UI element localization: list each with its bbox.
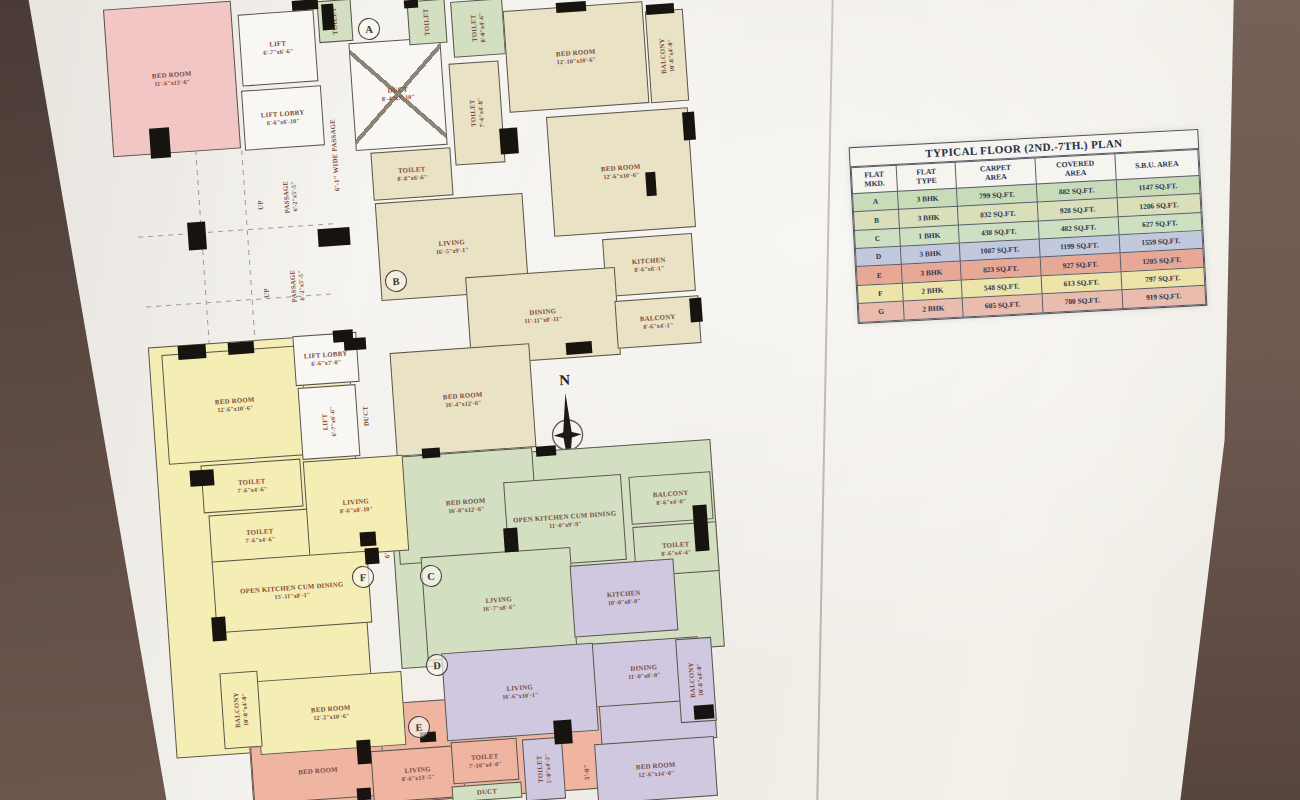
column-header: FLATTYPE bbox=[896, 162, 956, 191]
table-cell: 700 SQ.FT. bbox=[1042, 290, 1123, 313]
table-cell: 2 BHK bbox=[903, 298, 963, 319]
room-bed-room: BED ROOM16'-4"x12'-6" bbox=[390, 343, 537, 457]
room-6-1-wide-passage: 6'-1" WIDE PASSAGE bbox=[320, 70, 350, 241]
room-bed-room: BED ROOM12'-6"x10'-6" bbox=[161, 345, 308, 464]
structural-column bbox=[364, 548, 379, 565]
grid-line bbox=[241, 150, 256, 345]
room-label: TOILET8'-0"x4'-6" bbox=[469, 13, 487, 44]
room-kitchen: KITCHEN10'-0"x8'-0" bbox=[570, 558, 679, 637]
room-label: PASSAGE6'-2"x5'-5" bbox=[288, 269, 306, 303]
structural-column bbox=[422, 447, 441, 458]
room-label: TOILET7'-10"x4'-0" bbox=[468, 752, 502, 770]
table-cell: G bbox=[858, 301, 904, 322]
room-bed-room: BED ROOM12'-6"x10'-6" bbox=[546, 107, 696, 237]
room-toilet: TOILET8'-8"x6'-6" bbox=[370, 147, 453, 200]
room-label: UP bbox=[257, 200, 266, 210]
room-label: DUCT bbox=[477, 787, 498, 797]
room-toilet: TOILET8'-0"x4'-6" bbox=[450, 0, 506, 58]
room-label: BALCONY8'-6"x4'-0" bbox=[653, 489, 690, 507]
table-body: A3 BHK799 SQ.FT.882 SQ.FT.1147 SQ.FT.B3 … bbox=[853, 175, 1206, 322]
structural-column bbox=[228, 341, 255, 355]
structural-column bbox=[187, 221, 207, 250]
room-label: KITCHEN8'-6"x6'-1" bbox=[632, 256, 667, 274]
room-label: BED ROOM bbox=[298, 766, 338, 777]
structural-column bbox=[566, 341, 593, 355]
structural-column bbox=[189, 469, 214, 487]
structural-column bbox=[499, 127, 519, 154]
room-passage: PASSAGE6'-2"x5'-5" bbox=[269, 244, 324, 327]
structural-column bbox=[553, 719, 573, 744]
flat-area-table-grid: FLATMKD.FLATTYPECARPETAREACOVEREDAREAS.B… bbox=[851, 149, 1207, 323]
room-balcony: BALCONY10'-8"x4'-0" bbox=[645, 9, 689, 103]
room-lift-lobby: LIFT LOBBY6'-6"x6'-10" bbox=[241, 85, 325, 150]
room-passage: PASSAGE6'-2"x5'-5" bbox=[263, 156, 316, 237]
room-label: BED ROOM12'-6"x10'-6" bbox=[601, 163, 642, 181]
room-label: TOILET bbox=[422, 8, 432, 36]
room-label: BED ROOM12'-2"x10'-6" bbox=[311, 704, 352, 722]
room-label: BED ROOM12'-10"x10'-6" bbox=[556, 48, 597, 66]
room-label: LIFT6'-7"x6'-6" bbox=[320, 407, 338, 438]
structural-column bbox=[689, 298, 703, 323]
room-label: BED ROOM12'-6"x10'-6" bbox=[215, 396, 256, 414]
structural-column bbox=[317, 227, 350, 247]
room-label: 3'-0" bbox=[582, 764, 591, 781]
column-header: FLATMKD. bbox=[851, 165, 897, 193]
room-label: PASSAGE6'-2"x5'-5" bbox=[281, 180, 299, 214]
structural-column bbox=[149, 127, 171, 158]
room-label: BED ROOM16'-0"x12'-6" bbox=[446, 497, 487, 515]
table-cell: F bbox=[857, 283, 903, 304]
room-label: DUCT bbox=[361, 406, 371, 427]
room-label: TOILET5'-0"x4'-2" bbox=[535, 754, 553, 785]
flat-area-table: TYPICAL FLOOR (2ND.-7TH.) PLAN FLATMKD.F… bbox=[849, 129, 1208, 324]
room-label: BED ROOM12'-6"x14'-0" bbox=[636, 761, 677, 779]
table-cell: 605 SQ.FT. bbox=[962, 294, 1043, 317]
room-label: BED ROOM16'-4"x12'-6" bbox=[443, 391, 484, 409]
room-label: TOILET7'-6"x4'-8" bbox=[468, 98, 486, 129]
room-label: BALCONY10'-8"x4'-0" bbox=[658, 38, 676, 75]
room-label: TOILET8'-6"x4'-4" bbox=[661, 540, 692, 558]
room-open-kitchen-cum-dining: OPEN KITCHEN CUM DINING15'-11"x8'-1" bbox=[212, 551, 373, 634]
room-balcony: BALCONY8'-6"x4'-1" bbox=[614, 295, 701, 349]
room-lift: LIFT6'-7"x6'-6" bbox=[238, 9, 319, 86]
room-label: LIVING8'-6"x13'-5" bbox=[401, 765, 435, 783]
room-label: TOILET7'-6"x4'-6" bbox=[245, 527, 276, 545]
room-label: BED ROOM11'-6"x13'-6" bbox=[152, 70, 193, 88]
room-label: DINING11'-11"x8'-11" bbox=[523, 307, 562, 325]
structural-column bbox=[360, 531, 377, 546]
structural-column bbox=[356, 740, 372, 765]
photo-of-floor-plan-poster: N BED ROOM11'-6"x13'-6"LIFT6'-7"x6'-6"LI… bbox=[0, 0, 1300, 800]
room-label: KITCHEN10'-0"x8'-0" bbox=[607, 589, 642, 607]
table-cell: A bbox=[853, 191, 899, 212]
structural-column bbox=[211, 617, 227, 642]
room-duct: DUCT bbox=[356, 388, 376, 445]
room-label: LIVING16'-5"x9'-1" bbox=[435, 238, 469, 256]
structural-column bbox=[645, 172, 657, 197]
room-balcony: BALCONY10'-0"x4'-0" bbox=[219, 671, 262, 749]
room-label: UP bbox=[263, 288, 272, 298]
room-bed-room: BED ROOM12'-2"x10'-6" bbox=[256, 671, 407, 755]
structural-column bbox=[694, 704, 715, 719]
room-bed-room: BED ROOM11'-6"x13'-6" bbox=[103, 1, 241, 158]
typical-floor-plan-drawing: N BED ROOM11'-6"x13'-6"LIFT6'-7"x6'-6"LI… bbox=[0, 0, 760, 800]
room-label: TOILET7'-6"x4'-6" bbox=[237, 477, 268, 495]
room-label: TOILET8'-8"x6'-6" bbox=[397, 165, 428, 183]
table-cell: D bbox=[855, 246, 901, 267]
room-bed-room: BED ROOM12'-6"x14'-0" bbox=[594, 736, 718, 800]
room-toilet: TOILET7'-10"x4'-0" bbox=[451, 738, 520, 785]
structural-column bbox=[503, 528, 519, 553]
table-cell: 919 SQ.FT. bbox=[1122, 286, 1206, 309]
room-toilet: TOILET7'-6"x4'-8" bbox=[449, 60, 506, 165]
room-label: LIFT LOBBY6'-6"x7'-0" bbox=[304, 350, 349, 369]
table-cell: C bbox=[854, 228, 900, 249]
room-label: DUCT8'-4"x7'-10" bbox=[381, 85, 415, 103]
room-label: LIVING16'-7"x8'-6" bbox=[482, 595, 516, 613]
structural-column bbox=[556, 1, 587, 13]
table-cell: E bbox=[856, 265, 902, 286]
room-label: DINING11'-0"x8'-0" bbox=[627, 663, 661, 681]
room-label: LIVING16'-6"x10'-1" bbox=[501, 683, 538, 701]
structural-column bbox=[321, 4, 335, 31]
room-label: BALCONY10'-8"x4'-0" bbox=[687, 662, 705, 699]
room-label: LIVING8'-6"x8'-10" bbox=[339, 497, 373, 515]
room-label: LIFT LOBBY6'-6"x6'-10" bbox=[261, 109, 306, 128]
room-label: BALCONY8'-6"x4'-1" bbox=[640, 313, 677, 331]
flat-marker-f: F bbox=[351, 565, 374, 588]
structural-column bbox=[357, 788, 372, 800]
room-up: UP bbox=[259, 282, 275, 305]
room-lift: LIFT6'-7"x6'-6" bbox=[298, 384, 361, 460]
room-duct: DUCT8'-4"x7'-10" bbox=[348, 37, 447, 151]
room-living: LIVING8'-6"x8'-10" bbox=[303, 455, 409, 558]
room-label: 6'-1" WIDE PASSAGE bbox=[328, 119, 341, 192]
room-living: LIVING16'-6"x10'-1" bbox=[441, 643, 599, 741]
structural-column bbox=[178, 344, 207, 360]
room-label: OPEN KITCHEN CUM DINING11'-0"x9'-9" bbox=[513, 510, 617, 533]
room-3-0-: 3'-0" bbox=[575, 751, 600, 792]
structural-column bbox=[333, 329, 354, 342]
structural-column bbox=[682, 112, 696, 141]
room-up: UP bbox=[253, 194, 269, 217]
room-bed-room: BED ROOM12'-10"x10'-6" bbox=[503, 1, 650, 113]
structural-column bbox=[292, 0, 319, 11]
structural-column bbox=[404, 0, 419, 8]
room-label: BALCONY10'-0"x4'-0" bbox=[232, 692, 250, 729]
structural-column bbox=[536, 445, 557, 456]
room-label: LIFT6'-7"x6'-6" bbox=[263, 39, 294, 57]
room-living: LIVING16'-7"x8'-6" bbox=[421, 547, 578, 661]
structural-column bbox=[646, 3, 675, 15]
table-cell: B bbox=[854, 210, 900, 231]
room-toilet: TOILET7'-6"x4'-6" bbox=[200, 459, 303, 514]
room-toilet: TOILET5'-0"x4'-2" bbox=[522, 737, 566, 800]
flat-marker-a: A bbox=[357, 17, 380, 40]
room-label: OPEN KITCHEN CUM DINING15'-11"x8'-1" bbox=[240, 581, 344, 604]
